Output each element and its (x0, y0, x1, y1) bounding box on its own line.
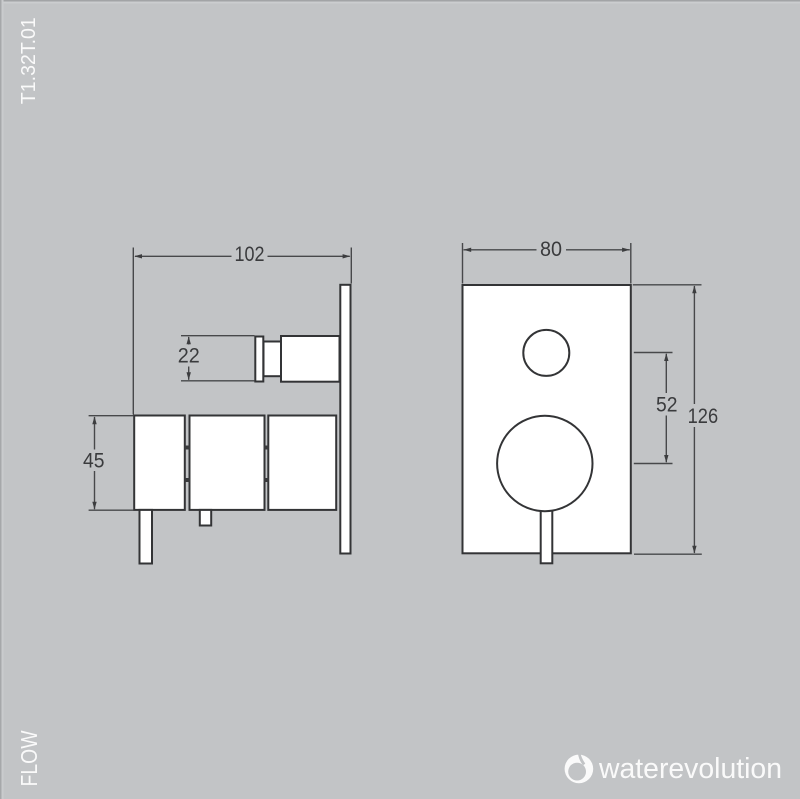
svg-text:waterevolution: waterevolution (598, 753, 782, 785)
svg-text:126: 126 (688, 405, 719, 428)
svg-text:22: 22 (178, 345, 200, 368)
svg-text:80: 80 (540, 238, 562, 261)
svg-text:45: 45 (83, 449, 105, 472)
svg-text:102: 102 (235, 243, 265, 266)
svg-text:FLOW: FLOW (16, 730, 42, 786)
svg-text:T1.32T.01: T1.32T.01 (17, 17, 40, 104)
svg-text:52: 52 (656, 394, 678, 417)
